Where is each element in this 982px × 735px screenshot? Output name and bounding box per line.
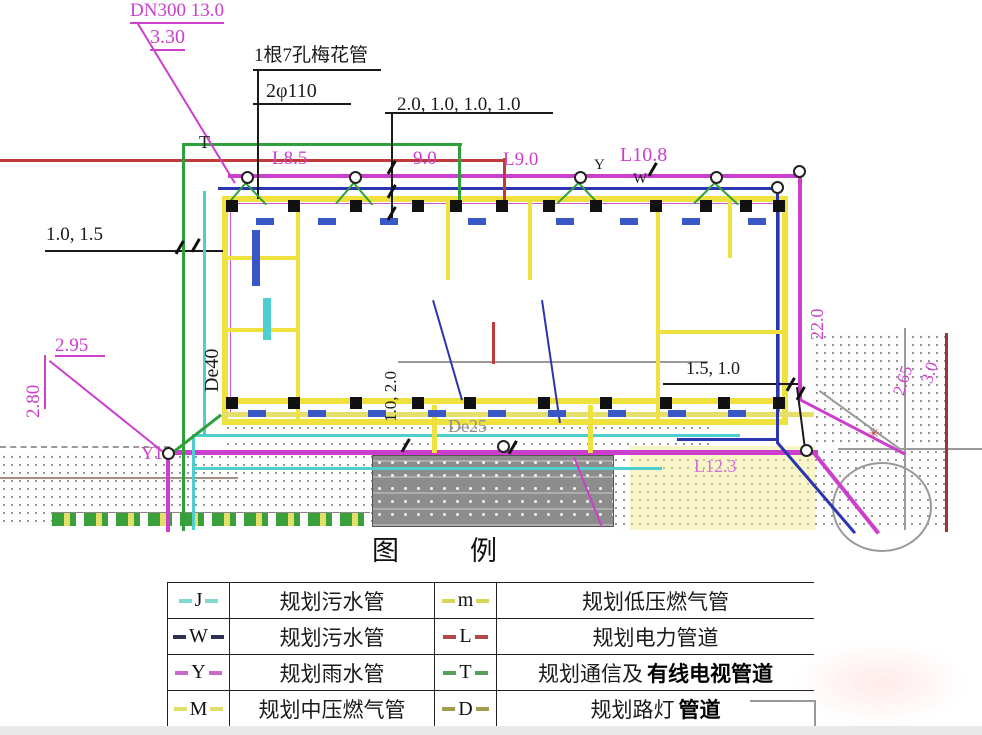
legend-symbol-W: W	[168, 619, 230, 654]
column-marker	[496, 200, 508, 212]
pipe-segment	[44, 355, 46, 409]
window-marker	[620, 218, 638, 225]
label-plum-pipe: 1根7孔梅花管	[254, 46, 368, 65]
column-marker	[660, 397, 672, 409]
manhole-circle	[710, 171, 723, 184]
pipe-segment	[203, 191, 206, 437]
legend-label-text: 规划路灯	[591, 694, 675, 724]
pipe-segment	[222, 256, 300, 260]
label-dia110: 2φ110	[266, 81, 317, 101]
pipe-segment	[945, 333, 948, 532]
pipe-diagonal	[49, 360, 166, 455]
pipe-segment	[192, 467, 662, 470]
pipe-segment	[253, 103, 351, 105]
label-y-mark: Y	[594, 158, 605, 173]
label-dims-mid: 1.0, 2.0	[382, 371, 399, 422]
legend-label-bold-overlay: 有线电视管道	[647, 658, 773, 688]
label-w-mark: W	[633, 172, 647, 187]
legend-label: 规划雨水管	[230, 655, 434, 690]
site-plan-drawing: ✳ DN300 13.03.301根7孔梅花管2φ1102.0, 1.0, 1.…	[0, 0, 982, 735]
pipe-segment	[663, 383, 801, 385]
pipe-dash-icon	[211, 635, 224, 639]
legend-letter: L	[459, 625, 471, 648]
pipe-segment	[166, 452, 170, 532]
pipe-segment	[588, 405, 593, 453]
window-marker	[318, 218, 336, 225]
pipe-segment	[838, 448, 982, 450]
pipe-segment	[222, 398, 788, 404]
pipe-dash-icon	[475, 671, 488, 675]
pipe-dash-icon	[443, 635, 456, 639]
window-marker	[428, 410, 446, 417]
legend-letter: M	[190, 698, 208, 721]
legend-row-L: L规划电力管道	[435, 619, 814, 655]
legend-label: 规划污水管	[230, 619, 434, 654]
label-l85: L8.5	[272, 149, 307, 168]
pipe-segment	[658, 330, 788, 334]
legend-row-W: W规划污水管	[168, 619, 434, 655]
column-marker	[590, 200, 602, 212]
legend-letter: D	[458, 698, 472, 721]
pipe-dash-icon	[476, 707, 489, 711]
column-marker	[288, 397, 300, 409]
window-marker	[468, 218, 486, 225]
pipe-segment	[182, 143, 462, 146]
legend-symbol-Y: Y	[168, 655, 230, 690]
pipe-segment	[192, 434, 195, 530]
legend-label: 规划低压燃气管	[497, 583, 814, 618]
label-l108: L10.8	[620, 145, 667, 165]
pipe-dash-icon	[209, 671, 222, 675]
legend-label-text: 规划中压燃气管	[259, 694, 406, 724]
legend-title: 图 例	[372, 529, 519, 568]
label-n90: 9.0	[413, 149, 437, 168]
window-marker	[488, 410, 506, 417]
window-marker	[256, 218, 274, 225]
pipe-segment	[218, 187, 778, 190]
column-marker	[226, 397, 238, 409]
label-e295: 2.95	[55, 336, 88, 355]
pipe-dash-icon	[443, 671, 456, 675]
pipe-segment	[0, 477, 238, 479]
planting-strip	[52, 512, 370, 526]
pipe-dash-icon	[205, 599, 218, 603]
window-marker	[248, 410, 266, 417]
pipe-segment	[257, 69, 259, 199]
legend-letter: T	[459, 661, 471, 684]
pipe-segment	[252, 230, 260, 286]
legend-label-text: 规划污水管	[280, 586, 385, 616]
label-e280: 2.80	[24, 385, 43, 418]
legend-label-text: 规划低压燃气管	[582, 586, 729, 616]
manhole-circle	[800, 444, 813, 457]
manhole-circle	[349, 171, 362, 184]
pipe-segment	[263, 298, 271, 340]
label-l123: L12.3	[694, 457, 737, 475]
legend-symbol-D: D	[435, 691, 497, 727]
pipe-dash-icon	[210, 707, 223, 711]
label-t-mark: T	[199, 133, 210, 151]
legend-label: 规划中压燃气管	[230, 691, 434, 727]
column-marker	[350, 200, 362, 212]
column-marker	[718, 397, 730, 409]
column-marker	[226, 200, 238, 212]
label-de40: De40	[202, 349, 222, 392]
label-dims-top: 2.0, 1.0, 1.0, 1.0	[397, 95, 521, 114]
pipe-segment	[253, 69, 381, 71]
manhole-circle	[793, 165, 806, 178]
legend-symbol-L: L	[435, 619, 497, 654]
column-marker	[650, 200, 662, 212]
legend-symbol-m: m	[435, 583, 497, 618]
legend-label: 规划电力管道	[497, 619, 814, 654]
watermark	[790, 640, 970, 725]
column-marker	[600, 397, 612, 409]
legend-label-text: 规划污水管	[280, 622, 385, 652]
legend-symbol-T: T	[435, 655, 497, 690]
window-marker	[608, 410, 626, 417]
legend-label: 规划通信及有线电视管道	[497, 655, 814, 690]
pipe-segment	[492, 322, 495, 364]
column-marker	[450, 200, 462, 212]
pipe-segment	[798, 174, 802, 400]
label-dn300: DN300 13.0	[130, 1, 224, 24]
legend-letter: m	[458, 589, 474, 612]
legend-row-J: J规划污水管	[168, 583, 434, 619]
pipe-segment	[656, 196, 660, 425]
legend-letter: W	[189, 625, 208, 648]
legend-row-M: M规划中压燃气管	[168, 691, 434, 727]
pipe-segment	[182, 143, 185, 531]
legend-label-bold-overlay: 管道	[679, 694, 721, 724]
pipe-dash-icon	[173, 635, 186, 639]
label-l90: L9.0	[503, 150, 538, 169]
label-y1: Y1	[141, 444, 163, 462]
legend-letter: Y	[191, 661, 205, 684]
legend-table-left: J规划污水管W规划污水管Y规划雨水管M规划中压燃气管	[167, 582, 435, 728]
column-marker	[773, 397, 785, 409]
column-marker	[700, 200, 712, 212]
legend-row-m: m规划低压燃气管	[435, 583, 814, 619]
pipe-segment	[458, 143, 461, 203]
bottom-edge-bar	[0, 726, 982, 735]
pipe-dash-icon	[475, 635, 488, 639]
column-marker	[538, 397, 550, 409]
label-de25: De25	[448, 417, 487, 435]
label-dims-left: 1.0, 1.5	[46, 225, 103, 244]
legend-letter: J	[195, 589, 203, 612]
manhole-circle	[241, 171, 254, 184]
column-marker	[350, 397, 362, 409]
tree-symbol	[832, 462, 932, 552]
legend-symbol-J: J	[168, 583, 230, 618]
paving-stipple-right-upper	[813, 333, 950, 451]
label-elev-330: 3.30	[150, 27, 185, 51]
pipe-segment	[728, 196, 732, 258]
pipe-segment	[904, 328, 906, 530]
pipe-segment	[296, 196, 300, 425]
column-marker	[740, 200, 752, 212]
pipe-dash-icon	[179, 599, 192, 603]
pipe-segment	[168, 450, 818, 455]
legend-label: 规划污水管	[230, 583, 434, 618]
column-marker	[773, 200, 785, 212]
window-marker	[548, 410, 566, 417]
legend-label-text: 规划电力管道	[593, 622, 719, 652]
pipe-segment	[222, 328, 300, 332]
manhole-circle	[574, 171, 587, 184]
pipe-segment	[45, 250, 223, 252]
pipe-dash-icon	[476, 599, 489, 603]
legend-label-text: 规划通信及	[538, 658, 643, 688]
label-v220: 22.0	[808, 309, 826, 341]
column-marker	[412, 397, 424, 409]
label-dims-right: 1.5, 1.0	[686, 359, 740, 377]
column-marker	[464, 397, 476, 409]
pipe-dash-icon	[442, 707, 455, 711]
window-marker	[728, 410, 746, 417]
window-marker	[668, 410, 686, 417]
pipe-segment	[528, 196, 532, 280]
pipe-segment	[677, 438, 779, 441]
window-marker	[748, 218, 766, 225]
pipe-segment	[398, 361, 708, 363]
shrub-symbol: ✳	[868, 426, 880, 442]
pipe-dash-icon	[175, 671, 188, 675]
pipe-dash-icon	[442, 599, 455, 603]
manhole-circle	[162, 447, 175, 460]
legend-row-Y: Y规划雨水管	[168, 655, 434, 691]
window-marker	[308, 410, 326, 417]
legend-row-T: T规划通信及有线电视管道	[435, 655, 814, 691]
pipe-dash-icon	[174, 707, 187, 711]
column-marker	[288, 200, 300, 212]
window-marker	[682, 218, 700, 225]
legend-label-text: 规划雨水管	[280, 658, 385, 688]
column-marker	[412, 200, 424, 212]
window-marker	[556, 218, 574, 225]
legend-symbol-M: M	[168, 691, 230, 727]
column-marker	[543, 200, 555, 212]
manhole-circle	[771, 181, 784, 194]
